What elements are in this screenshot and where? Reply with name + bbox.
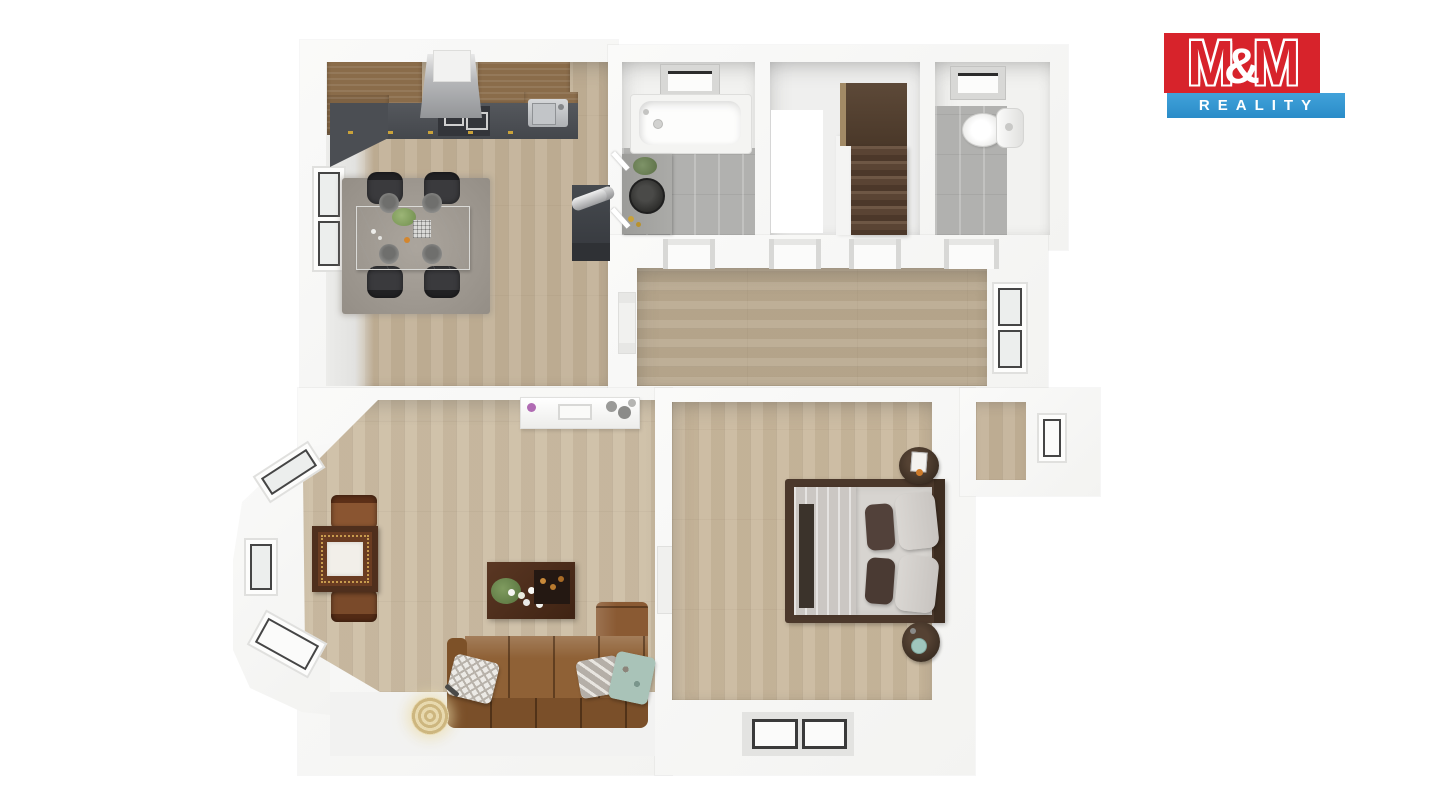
sideboard-bowl [618, 406, 631, 419]
logo-reality-bar: REALITY [1167, 93, 1345, 118]
tray-bottle [558, 576, 564, 582]
vanity-plant [633, 157, 657, 175]
door-opening [769, 239, 821, 269]
skylight-glass [958, 73, 998, 93]
stair-landing-platform [845, 83, 907, 146]
stair-landing-edge [840, 83, 846, 146]
sink-faucet [558, 104, 564, 110]
bay-window-pane [250, 544, 272, 590]
coffee-table-plant [491, 578, 521, 604]
teal-cup [911, 638, 927, 654]
writing-desk [312, 526, 378, 592]
bedroom-window-pane [802, 719, 847, 749]
tray-bottle [550, 584, 556, 590]
toilet-cistern [996, 108, 1024, 148]
sink-bowl [532, 103, 556, 125]
sideboard-bowl [628, 399, 636, 407]
cabinet-handle [508, 131, 513, 134]
logo-ampersand: & [1224, 41, 1260, 91]
bed-pillow-light [894, 491, 940, 551]
wood-stove-base [572, 243, 610, 261]
kitchen-sink [528, 99, 568, 127]
skylight-glass [668, 71, 712, 91]
tray-bottle [540, 578, 546, 584]
hallway-window-pane [998, 330, 1022, 368]
dining-chair [424, 266, 460, 298]
bed-runner [799, 504, 814, 608]
cabinet-handle [468, 131, 473, 134]
orange-fruit [404, 237, 410, 243]
bathtub [630, 94, 752, 154]
sideboard-vase [527, 403, 536, 412]
staircase-steps [851, 146, 907, 235]
table-decor-dot [371, 229, 376, 234]
bathroom-skylight-window [660, 64, 720, 98]
sideboard-tray [558, 404, 592, 420]
bathtub-drain [653, 119, 663, 129]
bed-pillow-dark [864, 557, 895, 605]
desk-chair [331, 590, 377, 622]
range-hood-duct [433, 50, 471, 82]
alcove-window-pane [1043, 419, 1061, 457]
desk-blotter [327, 542, 363, 576]
alcove-floor [976, 402, 1026, 480]
bay-window-middle [244, 538, 278, 596]
coffee-table-tray [534, 570, 570, 604]
stairwell-opening [771, 110, 823, 233]
dining-chair [367, 266, 403, 298]
plate [422, 244, 442, 264]
bed-pillow-dark [864, 503, 895, 551]
vanity-bottle [636, 222, 641, 227]
bed-headboard [934, 479, 945, 623]
vanity-basin [629, 178, 665, 214]
door-leaf [657, 546, 673, 614]
cabinet-handle [428, 131, 433, 134]
alcove-window [1037, 413, 1067, 463]
cistern-button [1005, 123, 1013, 131]
cabinet-handle [348, 131, 353, 134]
plate [422, 193, 442, 213]
vanity-bottle [628, 216, 634, 222]
hallway-floor [637, 268, 987, 386]
stair-dividing-wall [836, 136, 852, 235]
hallway-window-pane [998, 288, 1022, 326]
bathtub-faucet [643, 109, 649, 115]
hallway-window [992, 282, 1028, 374]
desk-chair [331, 495, 377, 529]
door-opening [663, 239, 715, 269]
floor-lamp [411, 697, 449, 735]
kitchen-window-pane [318, 172, 340, 217]
floor-plan-render: M&M REALITY [0, 0, 1440, 810]
sofa-back [447, 698, 648, 728]
kitchen-window [312, 166, 346, 272]
nightstand [899, 447, 939, 484]
plate [379, 244, 399, 264]
grid-plate [413, 220, 431, 238]
bedroom-window-pane [752, 719, 798, 749]
hallway-radiator [618, 292, 636, 354]
bed-pillow-light [894, 554, 940, 614]
clock-face [916, 469, 923, 476]
door-opening [944, 239, 999, 269]
coffee-table-flowers [508, 589, 515, 596]
mm-reality-logo: M&M [1164, 33, 1320, 93]
kitchen-window-pane [318, 221, 340, 266]
wc-skylight-window [950, 66, 1006, 100]
nightstand [902, 622, 940, 662]
door-opening [849, 239, 901, 269]
sideboard-bowl [606, 401, 617, 412]
logo-reality-text: REALITY [1199, 97, 1319, 114]
nightstand-item [910, 628, 916, 634]
cabinet-handle [388, 131, 393, 134]
table-decor-dot [378, 236, 382, 240]
